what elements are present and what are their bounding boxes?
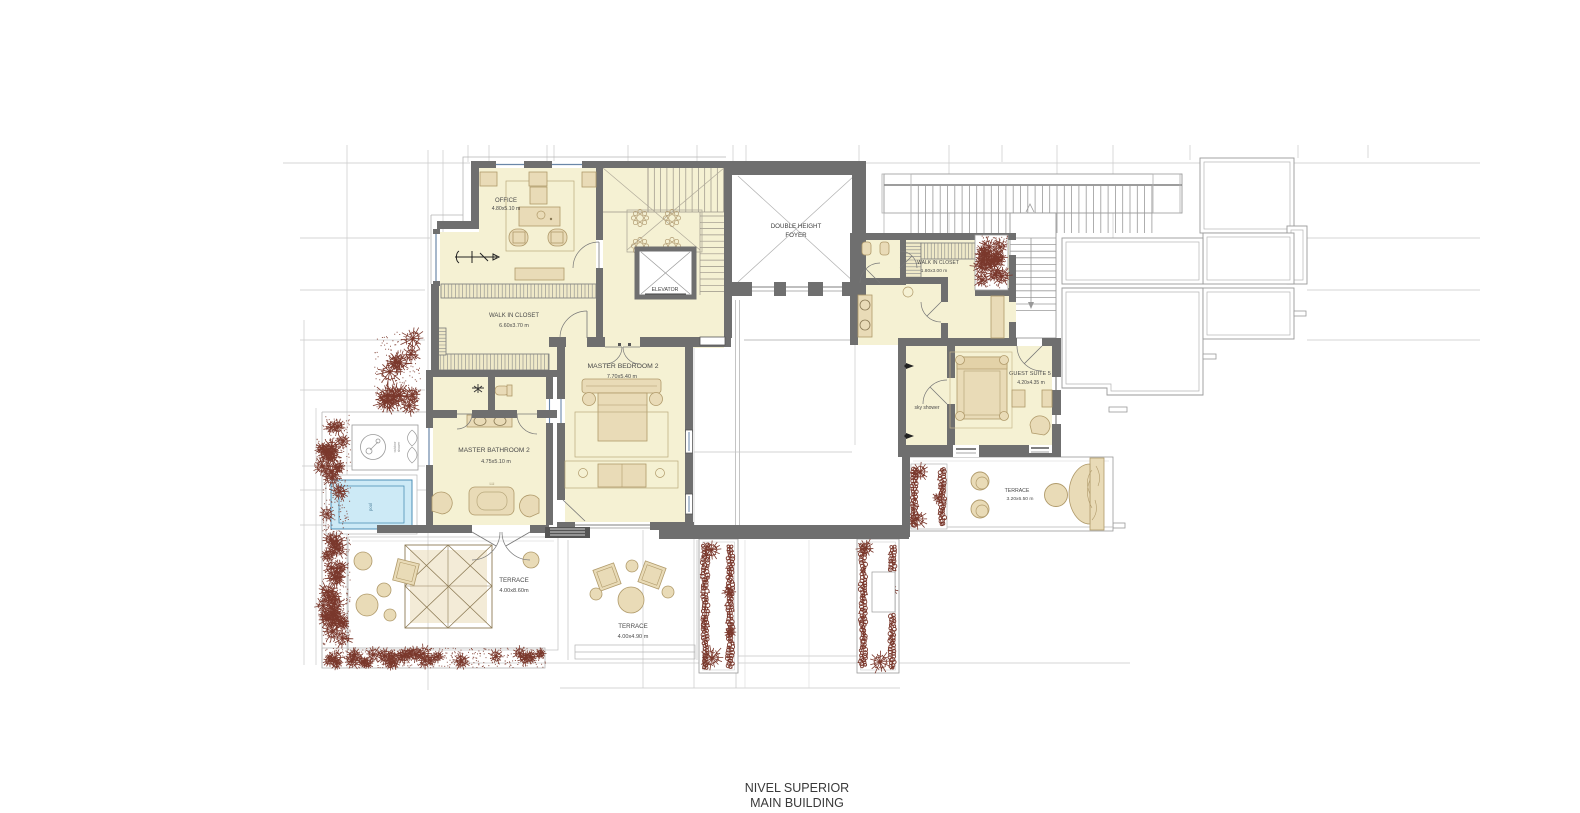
svg-text:GUEST SUITE 5: GUEST SUITE 5 — [1009, 371, 1051, 377]
svg-text:6.60x3.70 m: 6.60x3.70 m — [499, 323, 529, 329]
svg-text:3.20x6.50 m: 3.20x6.50 m — [1007, 496, 1034, 502]
svg-text:FOYER: FOYER — [785, 232, 807, 239]
svg-text:TERRACE: TERRACE — [618, 623, 648, 630]
svg-text:1.80x3.00 m: 1.80x3.00 m — [921, 268, 947, 274]
svg-text:l-l-l: l-l-l — [490, 482, 495, 486]
svg-text:ELEVATOR: ELEVATOR — [652, 287, 679, 293]
svg-text:OFFICE: OFFICE — [495, 198, 517, 204]
svg-text:MASTER BATHROOM 2: MASTER BATHROOM 2 — [458, 447, 530, 454]
svg-text:TERRACE: TERRACE — [499, 577, 529, 584]
svg-text:TERRACE: TERRACE — [1005, 488, 1030, 494]
svg-text:MASTER BEDROOM 2: MASTER BEDROOM 2 — [588, 363, 659, 370]
svg-text:4.20x4.35 m: 4.20x4.35 m — [1017, 380, 1045, 386]
svg-text:4.00x8.60m: 4.00x8.60m — [499, 588, 529, 594]
svg-text:4.00x4.90 m: 4.00x4.90 m — [618, 634, 649, 640]
svg-text:WALK IN CLOSET: WALK IN CLOSET — [917, 260, 959, 266]
svg-text:4.75x5.10 m: 4.75x5.10 m — [481, 459, 511, 465]
svg-text:MAIN BUILDING: MAIN BUILDING — [750, 796, 844, 810]
svg-text:4.80x5.10 m: 4.80x5.10 m — [492, 206, 521, 212]
svg-text:sky shower: sky shower — [914, 405, 939, 411]
svg-text:shower: shower — [397, 441, 401, 452]
svg-text:pool: pool — [368, 503, 373, 511]
svg-text:WALK IN CLOSET: WALK IN CLOSET — [489, 313, 539, 319]
svg-text:DOUBLE HEIGHT: DOUBLE HEIGHT — [771, 223, 822, 230]
svg-text:NIVEL SUPERIOR: NIVEL SUPERIOR — [745, 781, 849, 795]
